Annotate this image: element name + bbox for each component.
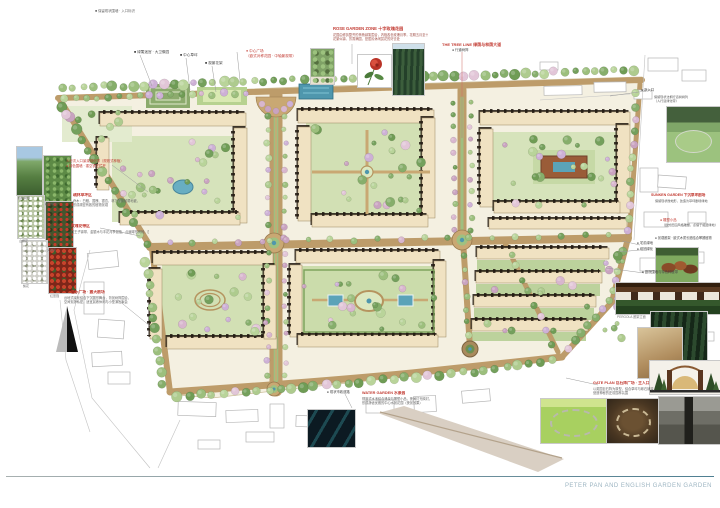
- photo-garden-corner: [311, 49, 334, 84]
- photo-water-night: [308, 410, 355, 447]
- rose-belt-title: 玫瑰花带区: [71, 224, 90, 229]
- photo-caption: 山楂花: [19, 239, 28, 243]
- footer-rule-top: [6, 476, 714, 477]
- photo-sunken-lawn: [667, 107, 720, 162]
- photo-caption: 红蔷薇: [50, 294, 59, 298]
- photo-caption: 火棘果: [47, 248, 56, 252]
- photo-white-flowers: [18, 196, 44, 238]
- grove-text: 乔木：白蜡、国槐、银杏，林下配置耐荫地被， 形成疏密有致的植物景观: [73, 199, 145, 208]
- lawn-ring: [675, 130, 712, 153]
- photo-stonehenge-closeup: [659, 397, 720, 444]
- stone-circle: [550, 409, 598, 438]
- tree-line-title: THE TREE LINE 绿荫与林荫大道: [442, 42, 501, 48]
- water-garden-title: WATER GARDEN 水景园: [362, 391, 405, 396]
- note-top-left: ■ 保留现状围墙 · 入口标识: [95, 9, 135, 14]
- grove-title: 疏林草坪区: [73, 193, 92, 198]
- right-entry-bullet: ● 次入口: [641, 88, 654, 93]
- photo-caption: 模纹绿篱: [45, 202, 57, 206]
- sheet-title: PETER PAN AND ENGLISH GARDEN GARDEN: [565, 483, 712, 489]
- pergola-elevation: [616, 283, 720, 314]
- tree-line-sub: ● 行道树阵: [452, 48, 469, 53]
- masterplan-sheet: 桧柏树阵 模纹绿篱 山楂花 火棘果 梨花 红蔷薇: [0, 0, 720, 508]
- photo-cedar-tree: [393, 44, 424, 95]
- pergola-note: ● 景观廊架 · 欧式木质长廊结合攀援植物: [655, 236, 719, 240]
- photo-caption: 桧柏树阵: [18, 196, 30, 200]
- right-entry-text: 保留现状法桐行道树树列 （人行道绿化带）: [654, 95, 716, 104]
- rose-illustration: [358, 55, 391, 87]
- gate-plan-text: 以英国巨石阵为原型，结合草坪与砾石铺装， 营造神秘的史前园林氛围: [593, 387, 711, 396]
- rose-garden-text: 花园由修剪整齐的黄杨绿篱围合，内植各色玫瑰月季，花期五月至十月， 花繁似锦、芳香…: [333, 33, 428, 42]
- note-left-entry: 人行次入口景观绿化带（规则式种植） ● 特色围墙 · 镂空铁艺栏杆: [66, 159, 136, 169]
- photo-horses: [656, 248, 698, 282]
- gate-plan-title: GATE PLAN 巨石阵广场 · 主入口: [593, 381, 649, 386]
- photo-tree-row: [17, 147, 42, 195]
- se-road-note: ● 现状市政道路: [327, 390, 350, 395]
- note-maze: ■ 绿篱迷宫 · 大卫像园: [134, 50, 169, 55]
- note-arbor: ■ 观景花架: [205, 61, 223, 66]
- music-plaza-title: 音乐广场 · 露天剧场: [71, 290, 105, 295]
- pergola-caption: PERGOLA 廊架立面: [617, 315, 646, 319]
- sunken-garden-sub: 保留现状微地形，改造为草坪剧场绿地: [655, 199, 717, 203]
- note-courtyard-wall: ● 庭院围墙与特色种植带: [642, 270, 714, 275]
- music-plaza-text: 台地式绿化结合下沉圆形舞台，背景树阵围合， 空间安静私密，适宜晨练休闲与小型演出…: [64, 296, 156, 305]
- rose-garden-title: ROSE GARDEN ZONE 十字玫瑰花园: [333, 26, 403, 32]
- rose-belt-text: 红王子锦带、金银木与丰花月季混植，点缀球形黄杨，四季有景: [71, 230, 149, 234]
- sunken-garden-title: SUNKEN GARDEN 下沉草坪剧场: [651, 193, 719, 198]
- photo-stonehenge-render: [541, 399, 606, 443]
- water-garden-text: 规则式水池结合涌泉与雕塑小品，夜间灯光映衬， 形成静谧优雅的中心水景花园（夜景效…: [362, 397, 448, 406]
- photo-red-berries: [46, 202, 73, 247]
- sculpture-sub: （欧式田园风格雕塑，点缀于组团绿地）: [662, 223, 718, 227]
- note-center-plaza: ● 中心广场 （欧式对称花园 · 中轴景观带）: [246, 49, 296, 59]
- footer-rule-bottom: [6, 480, 714, 481]
- photo-red-roses: [49, 248, 76, 293]
- stone-circle: [616, 408, 651, 438]
- note-cluster-green: ● 组团绿化: [637, 247, 653, 252]
- note-front-green: ● 宅前绿地: [637, 241, 653, 246]
- photo-stonehenge-aerial: [607, 399, 658, 443]
- note-lawn: ■ 中心草坪: [180, 53, 198, 58]
- rose-sketch: [358, 55, 391, 87]
- photo-caption: 梨花: [23, 284, 29, 288]
- photo-blossom: [22, 241, 47, 283]
